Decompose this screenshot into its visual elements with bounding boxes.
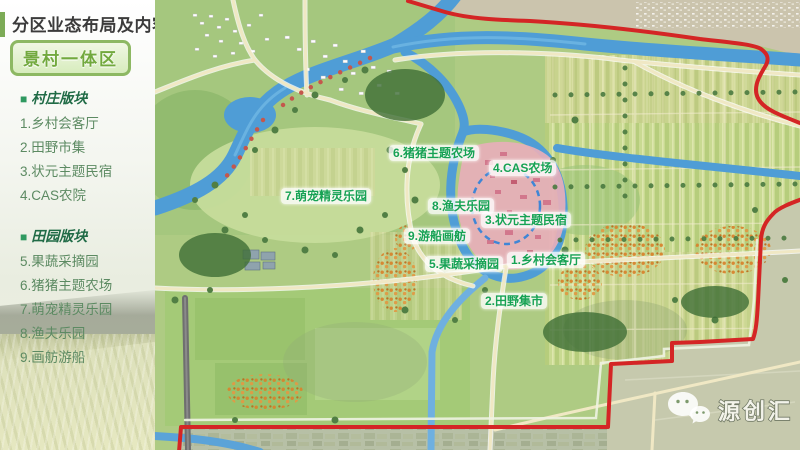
list-item: 2.田野市集 xyxy=(20,136,150,160)
sidebar-lists: ■村庄版块 1.乡村会客厅 2.田野市集 3.状元主题民宿 4.CAS农院 ■田… xyxy=(20,88,150,388)
map-label-boat-cruise: 9.游船画舫 xyxy=(404,228,470,244)
zone-badge: 景村一体区 xyxy=(10,40,131,76)
map-illustration: 源创汇 xyxy=(155,0,800,450)
page-title: 分区业态布局及内容 xyxy=(12,11,155,36)
map-label-village-hall: 1.乡村会客厅 xyxy=(507,252,585,268)
section-header-label: 村庄版块 xyxy=(31,90,87,106)
list-item: 9.画舫游船 xyxy=(20,346,150,370)
map-label-pet-park: 7.萌宠精灵乐园 xyxy=(281,188,371,204)
slide: 分区业态布局及内容 景村一体区 ■村庄版块 1.乡村会客厅 2.田野市集 3.状… xyxy=(0,0,800,450)
field-item-list: 5.果蔬采摘园 6.猪猪主题农场 7.萌宠精灵乐园 8.渔夫乐园 9.画舫游船 xyxy=(20,250,150,370)
map-label-field-market: 2.田野集市 xyxy=(481,293,547,309)
village-item-list: 1.乡村会客厅 2.田野市集 3.状元主题民宿 4.CAS农院 xyxy=(20,112,150,208)
list-item: 3.状元主题民宿 xyxy=(20,160,150,184)
list-item: 6.猪猪主题农场 xyxy=(20,274,150,298)
section-header-village: ■村庄版块 xyxy=(20,88,150,108)
sidebar: 分区业态布局及内容 景村一体区 ■村庄版块 1.乡村会客厅 2.田野市集 3.状… xyxy=(0,0,155,450)
map-label-cas-farm: 4.CAS农场 xyxy=(489,160,556,176)
masterplan-map: 源创汇 6.猪猪主题农场 4.CAS农场 7.萌宠精灵乐园 8.渔夫乐园 3.状… xyxy=(155,0,800,450)
section-header-label: 田园版块 xyxy=(31,228,87,244)
list-item: 4.CAS农院 xyxy=(20,184,150,208)
section-bullet-icon: ■ xyxy=(20,92,27,106)
list-item: 1.乡村会客厅 xyxy=(20,112,150,136)
map-label-picking-garden: 5.果蔬采摘园 xyxy=(425,256,503,272)
map-label-theme-homestay: 3.状元主题民宿 xyxy=(481,212,571,228)
watermark-brand: 源创汇 xyxy=(718,399,793,424)
list-item: 5.果蔬采摘园 xyxy=(20,250,150,274)
list-item: 8.渔夫乐园 xyxy=(20,322,150,346)
map-label-pig-farm: 6.猪猪主题农场 xyxy=(389,145,479,161)
section-header-field: ■田园版块 xyxy=(20,226,150,246)
list-item: 7.萌宠精灵乐园 xyxy=(20,298,150,322)
title-accent-bar xyxy=(0,12,5,37)
section-bullet-icon: ■ xyxy=(20,230,27,244)
